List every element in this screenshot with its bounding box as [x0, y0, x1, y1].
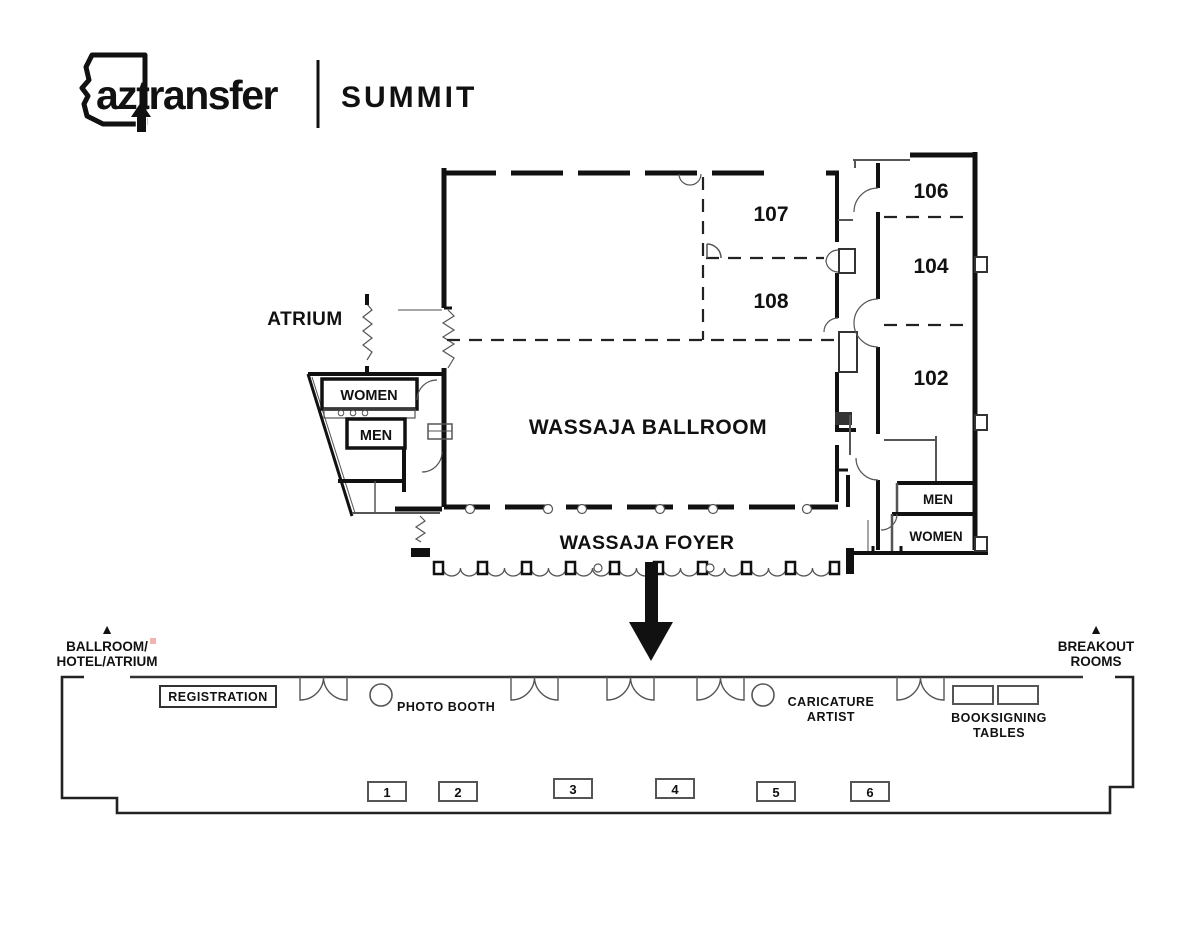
booksigning-table-1 — [953, 686, 993, 704]
airwall-partitions — [447, 177, 836, 340]
table-4: 4 — [656, 779, 694, 798]
triangle-up-icon: ▲ — [100, 621, 114, 637]
direction-right-line2: ROOMS — [1070, 654, 1121, 669]
room-107-label: 107 — [753, 203, 788, 226]
down-arrow-icon — [629, 562, 673, 661]
men-right-label: MEN — [923, 492, 953, 507]
caricature-label-line2: ARTIST — [807, 710, 855, 724]
top-wall-door-arcs — [679, 174, 701, 185]
svg-text:4: 4 — [671, 782, 679, 797]
direction-right-line1: BREAKOUT — [1058, 639, 1135, 654]
table-2: 2 — [439, 782, 477, 801]
registration-label: REGISTRATION — [168, 690, 268, 704]
photo-booth-spot — [370, 684, 392, 706]
men-left-label: MEN — [360, 428, 392, 444]
caricature-label-line1: CARICATURE — [788, 695, 875, 709]
svg-text:2: 2 — [454, 785, 461, 800]
room-106-label: 106 — [913, 180, 948, 203]
foyer-detail-plan: REGISTRATION PHOTO BOOTH CARICATURE ARTI… — [62, 677, 1133, 813]
numbered-tables: 1 2 3 4 5 6 — [368, 779, 889, 801]
pink-artifact — [150, 638, 156, 644]
breakout-wing — [838, 152, 988, 574]
women-left-label: WOMEN — [340, 388, 397, 404]
direction-left-line1: BALLROOM/ — [66, 639, 148, 654]
booksigning-label-line1: BOOKSIGNING — [951, 711, 1047, 725]
east-vestibules — [824, 249, 857, 507]
svg-text:5: 5 — [772, 785, 779, 800]
ballroom-label: WASSAJA BALLROOM — [529, 416, 767, 439]
logo-header: aztransfer SUMMIT — [82, 55, 477, 132]
booksigning-table-2 — [998, 686, 1038, 704]
foyer-label: WASSAJA FOYER — [560, 532, 735, 554]
table-6: 6 — [851, 782, 889, 801]
caricature-artist-spot — [752, 684, 774, 706]
women-right-label: WOMEN — [909, 529, 962, 544]
svg-text:1: 1 — [383, 785, 390, 800]
svg-text:3: 3 — [569, 782, 576, 797]
event-wordmark: SUMMIT — [341, 81, 477, 114]
svg-text:6: 6 — [866, 785, 873, 800]
table-3: 3 — [554, 779, 592, 798]
photo-booth-label: PHOTO BOOTH — [397, 700, 495, 714]
atrium-label: ATRIUM — [267, 309, 342, 330]
upper-floor-plan: ATRIUM 107 108 106 104 102 WASSAJA BALLR… — [267, 152, 988, 576]
event-map-page: aztransfer SUMMIT — [0, 0, 1198, 926]
brand-wordmark: aztransfer — [96, 72, 279, 118]
floor-plan-canvas: aztransfer SUMMIT — [0, 0, 1198, 926]
table-1: 1 — [368, 782, 406, 801]
direction-right: ▲ BREAKOUT ROOMS — [1058, 621, 1135, 669]
booksigning-label-line2: TABLES — [973, 726, 1025, 740]
direction-left: ▲ BALLROOM/ HOTEL/ATRIUM — [57, 621, 158, 669]
triangle-up-icon: ▲ — [1089, 621, 1103, 637]
direction-left-line2: HOTEL/ATRIUM — [57, 654, 158, 669]
room-108-label: 108 — [753, 290, 788, 313]
table-5: 5 — [757, 782, 795, 801]
room-104-label: 104 — [913, 255, 948, 278]
room-102-label: 102 — [913, 367, 948, 390]
